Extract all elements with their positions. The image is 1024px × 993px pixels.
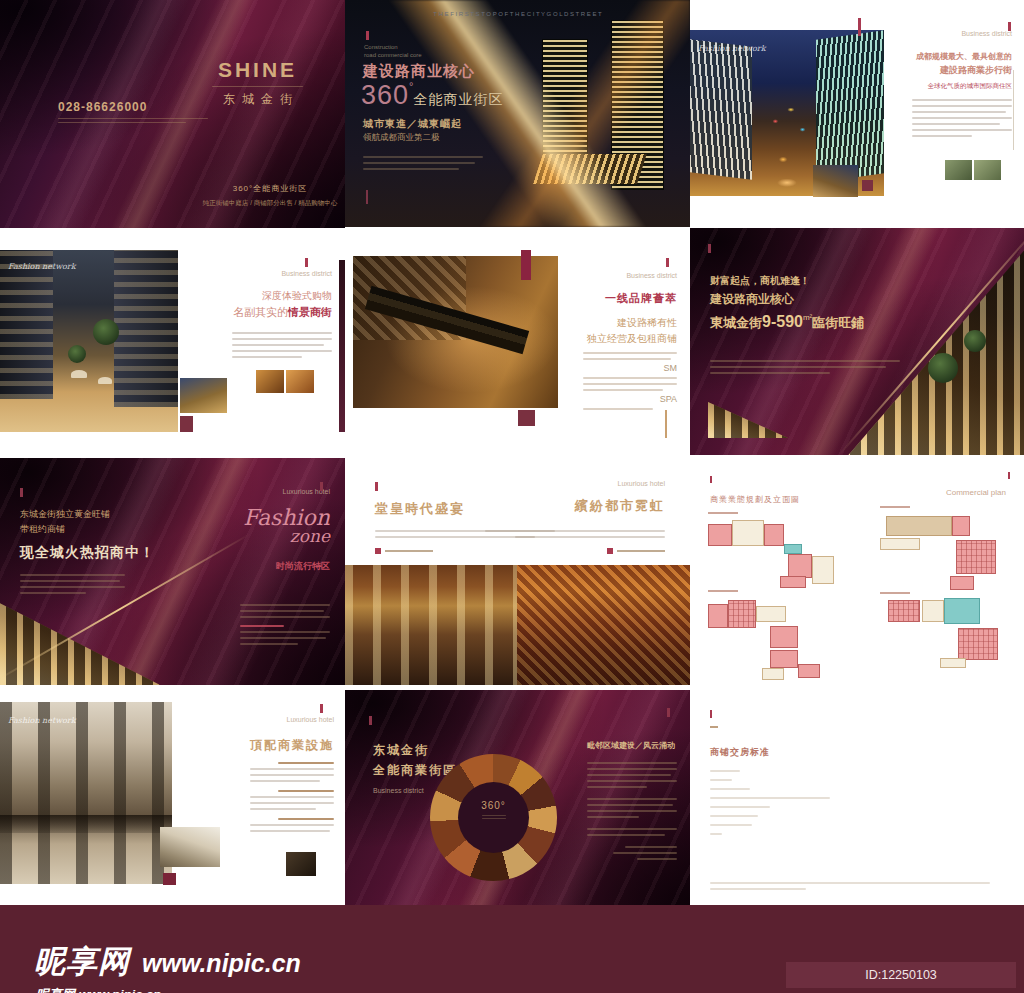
body-copy-placeholder [912, 95, 1012, 137]
photo-watermark: Fashion network [8, 262, 76, 271]
headline-line2: 名副其实的情景商街 [232, 305, 332, 320]
planter-graphic [928, 353, 958, 383]
headline-right: 繽紛都市霓虹 [505, 497, 665, 515]
maroon-square-accent [862, 180, 873, 191]
mini-logo-text-bar [385, 550, 433, 552]
body-copy-placeholder [240, 600, 330, 645]
small-photo-slice [708, 378, 788, 438]
red-tick-mark [366, 190, 368, 204]
right-text-block: Luxurious hotel Fashion zone 时尚流行特区 [235, 488, 330, 573]
body-copy-placeholder: SM SPA [583, 348, 677, 410]
logo-wordmark: SHINE [190, 58, 325, 82]
headline-plain: 名副其实的 [233, 306, 288, 318]
tree-graphic [68, 345, 86, 363]
section-label: Luxurious hotel [235, 488, 330, 495]
body-copy-placeholder [250, 758, 334, 832]
red-tick-mark [1008, 22, 1011, 31]
line-offer: 東城金街9-590m²臨街旺鋪 [710, 313, 864, 332]
headline-line1: 东城金街 [373, 742, 457, 759]
cover-contact: 028-86626000 [58, 100, 228, 123]
red-tick-mark [20, 488, 23, 497]
headline-red: 情景商街 [288, 306, 332, 318]
planter-graphic [964, 330, 986, 352]
red-tick-mark [320, 482, 323, 491]
body-token-spa: SPA [660, 394, 677, 404]
cover-slogan-line: 360°全能商业街区 [180, 183, 345, 194]
plan-caption-bar [708, 512, 738, 514]
mini-logo-text-bar [617, 550, 665, 552]
red-accent-bar [858, 18, 861, 36]
body-copy-placeholder [485, 526, 665, 538]
spread-standards: 商铺交房标准 [690, 690, 1024, 905]
vertical-rule [1013, 70, 1014, 150]
spread-business-district: Fashion network Business district 成都规模最大… [690, 10, 1024, 220]
floor-plan-1 [708, 518, 838, 588]
maroon-square-accent [180, 416, 193, 432]
body-copy-placeholder [710, 356, 900, 374]
eyebrow-text: Constructionroad commercial core [364, 43, 422, 59]
right-head-block: Luxurious hotel 繽紛都市霓虹 [505, 480, 665, 515]
area-number: 9-590 [762, 313, 803, 330]
headline-360: 360°全能商业街区 [361, 80, 503, 111]
shopfront-graphic [0, 250, 53, 399]
headline-core: 建设路商业核心 [363, 62, 475, 81]
red-tick-mark [369, 716, 372, 725]
image-id-badge: ID:12250103 NO:20161227175712297032 [786, 962, 1016, 988]
plan-caption-bar [880, 506, 910, 508]
headline-line1: 成都规模最大、最具创意的 [912, 51, 1012, 62]
dash-accent [710, 726, 718, 728]
left-text-block: 东城金街独立黄金旺铺 带租约商铺 现全城火热招商中！ [20, 508, 155, 562]
headline-line2: 独立经营及包租商铺 [583, 332, 677, 346]
red-tick-mark [305, 258, 308, 267]
spec-list-placeholder [710, 766, 910, 835]
furniture-graphic [0, 815, 172, 833]
section-label: Business district [583, 272, 677, 279]
text-column: Luxurious hotel 頂配商業設施 [250, 716, 334, 754]
brand-name: 東城金街 [710, 315, 762, 330]
body-copy-placeholder [20, 570, 125, 594]
floor-plan-2 [708, 596, 838, 681]
street-glow-graphic [345, 0, 690, 227]
small-photo [180, 378, 227, 413]
maroon-tab-accent [521, 250, 531, 280]
subline-2: 领航成都商业第二极 [363, 132, 440, 144]
storefront-photo-slice [810, 228, 1024, 455]
small-photo [160, 827, 220, 867]
floor-plan-3 [880, 512, 1006, 592]
brochure-preview-canvas: SHINE 东城金街 028-86626000 360°全能商业街区 纯正街铺中… [0, 0, 1024, 993]
site-url: www.nipic.cn [142, 949, 301, 977]
red-tick-mark [710, 476, 712, 483]
thumbnail-photo [286, 852, 316, 876]
restaurant-photo [345, 565, 517, 685]
disclaimer-placeholder [710, 878, 990, 890]
line-core: 建设路商业核心 [710, 291, 864, 308]
red-tick-mark [320, 704, 323, 713]
spread-wealth: 财富起点，商机难逢！ 建设路商业核心 東城金街9-590m²臨街旺鋪 [690, 228, 1024, 455]
red-tick-mark [710, 710, 712, 718]
headline-right: 毗邻区域建设／风云涌动 [587, 740, 677, 751]
spread-360-ring: 东城金街 全能商業街區 Business district 360° 毗邻区域建… [345, 690, 690, 905]
small-photo [813, 165, 858, 197]
spread-commercial-core: T H E F I R S T S T O P O F T H E C I T … [345, 0, 690, 227]
cover-slogan: 360°全能商业街区 纯正街铺中庭店 / 商铺部分出售 / 精品购物中心 [180, 183, 345, 208]
top-english-strip: T H E F I R S T S T O P O F T H E C I T … [345, 11, 690, 17]
red-tick-mark [366, 31, 369, 40]
umbrella-graphic [71, 370, 87, 378]
headline-left: 堂皇時代盛宴 [375, 500, 465, 518]
red-tick-mark [708, 244, 711, 253]
body-copy-placeholder [232, 328, 332, 358]
headline: 頂配商業設施 [250, 737, 334, 754]
offer-tail: 臨街旺鋪 [812, 315, 864, 330]
red-tick-mark [1008, 472, 1010, 479]
section-label: Luxurious hotel [505, 480, 665, 487]
section-label: Business district [232, 270, 332, 277]
thumbnail-photo [286, 370, 314, 393]
gold-rule [665, 410, 667, 438]
spread-feast: 堂皇時代盛宴 Luxurious hotel 繽紛都市霓虹 [345, 460, 690, 685]
subline-1: 城市東進／城東崛起 [363, 117, 462, 131]
thumbnail-photo [945, 160, 972, 180]
shopfront-graphic [114, 250, 178, 407]
spread-facilities: Fashion network Luxurious hotel 頂配商業設施 [0, 692, 345, 905]
text-column: Business district 深度体验式购物 名副其实的情景商街 [232, 270, 332, 320]
spread-floor-plans: 商業業態規劃及立面圖 Commercial plan [690, 458, 1024, 685]
spread-shopping-street: Fashion network Business district 深度体验式购… [0, 250, 345, 440]
pedestrian-street-photo: Fashion network [0, 250, 178, 432]
tree-graphic [93, 319, 119, 345]
section-label: Business district [912, 30, 1012, 37]
red-tick-mark [666, 258, 669, 267]
thumbnail-photo [974, 160, 1001, 180]
umbrella-graphic [98, 377, 112, 384]
plans-label: Commercial plan [900, 488, 1006, 497]
spread-brands: Business district 一线品牌薈萃 建设路稀有性 独立经营及包租商… [345, 250, 690, 455]
red-subline: 全球化气质的城市国际商住区 [912, 82, 1012, 91]
headline-street: 全能商业街区 [413, 91, 503, 107]
thumbnail-photo [256, 370, 284, 393]
lobby-photo: Fashion network [0, 702, 172, 884]
headline-line1: 建设路稀有性 [583, 316, 677, 330]
body-token-sm: SM [664, 363, 678, 373]
line-wealth: 财富起点，商机难逢！ [710, 274, 864, 288]
plan-caption-bar [880, 592, 910, 594]
body-copy-placeholder [587, 758, 677, 860]
site-name: 昵享网 [34, 944, 130, 979]
photo-watermark: Fashion network [698, 44, 766, 53]
lounge-photo [517, 565, 690, 685]
red-subline: 时尚流行特区 [235, 560, 330, 573]
cover-slogan-sub: 纯正街铺中庭店 / 商铺部分出售 / 精品购物中心 [180, 199, 345, 208]
ring-center-text: 360° [430, 800, 557, 819]
watermark-bar: 昵享网www.nipic.cn 昵享网 www.nipic.cn ID:1225… [0, 905, 1024, 993]
big-number: 360 [361, 80, 409, 110]
plan-caption-bar [708, 590, 738, 592]
line-1: 东城金街独立黄金旺铺 [20, 508, 155, 521]
section-label: Luxurious hotel [250, 716, 334, 723]
red-tick-mark [375, 482, 378, 491]
mini-logo-mark [607, 548, 613, 554]
watermark-cut-line: 昵享网 www.nipic.cn [36, 986, 161, 993]
headline-red: 一线品牌薈萃 [583, 291, 677, 306]
photo-watermark: Fashion network [8, 716, 76, 725]
headline-line2: 建設路商業步行街 [912, 64, 1012, 77]
spread-cover: SHINE 东城金街 028-86626000 360°全能商业街区 纯正街铺中… [0, 0, 345, 228]
area-unit: m² [803, 313, 812, 322]
red-tick-mark [667, 708, 670, 717]
floor-plan-4 [880, 598, 1006, 670]
plans-title: 商業業態規劃及立面圖 [710, 494, 800, 505]
mini-logo-mark [375, 548, 381, 554]
headline-line1: 深度体验式购物 [232, 289, 332, 303]
right-text-block: 毗邻区域建设／风云涌动 [587, 740, 677, 751]
watermark-brand: 昵享网www.nipic.cn [34, 941, 301, 983]
line-2: 带租约商铺 [20, 523, 155, 536]
big-line: 现全城火热招商中！ [20, 544, 155, 562]
text-block: 财富起点，商机难逢！ 建设路商业核心 東城金街9-590m²臨街旺鋪 [710, 274, 864, 332]
maroon-square-accent [163, 873, 176, 885]
body-copy-placeholder [363, 152, 483, 170]
standards-title: 商铺交房标准 [710, 746, 770, 759]
text-column: Business district 一线品牌薈萃 建设路稀有性 独立经营及包租商… [583, 272, 677, 346]
phone-number: 028-86626000 [58, 100, 228, 114]
text-column: Business district 成都规模最大、最具创意的 建設路商業步行街 … [912, 30, 1012, 91]
maroon-square-accent [518, 410, 535, 426]
spread-fashion-zone: 东城金街独立黄金旺铺 带租约商铺 现全城火热招商中！ Luxurious hot… [0, 458, 345, 685]
ring-360-label: 360° [430, 800, 557, 811]
